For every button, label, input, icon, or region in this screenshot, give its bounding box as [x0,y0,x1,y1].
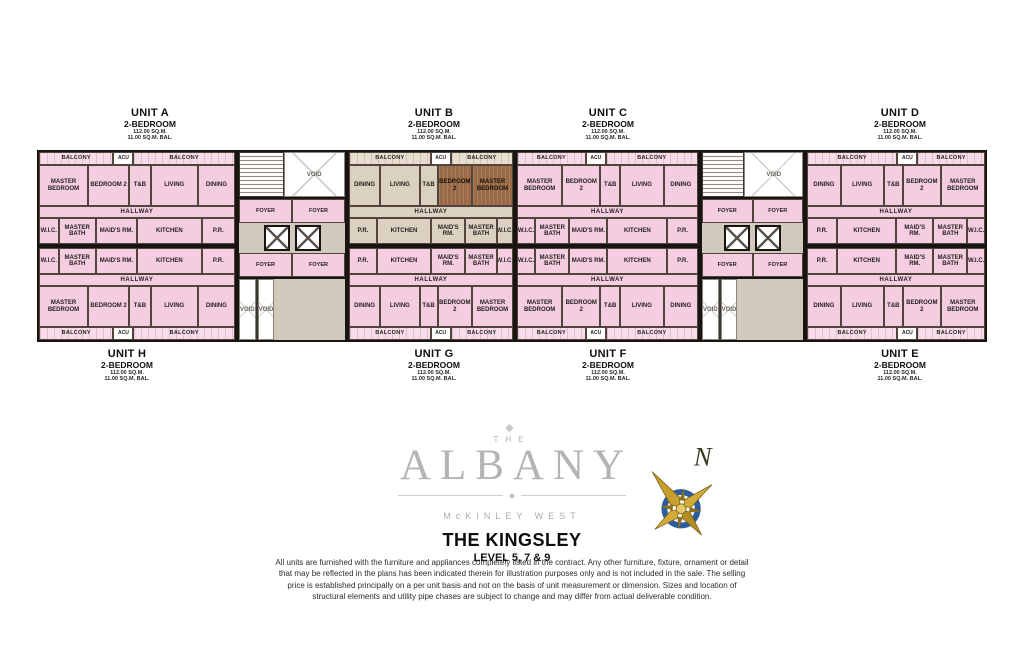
unit-type: 2-BEDROOM [369,119,499,129]
foyer-row: FOYERFOYER [702,199,803,223]
room-hallway: HALLWAY [349,274,513,286]
room-dining: DINING [198,286,235,327]
room-hallway: HALLWAY [39,206,235,218]
unit-name: UNIT H [62,348,192,360]
room-bedroom-2: BEDROOM 2 [562,286,600,327]
disclaimer-text: All units are furnished with the furnitu… [273,557,751,602]
room-maid-s-rm: MAID'S RM. [431,218,465,244]
room-master-bedroom: MASTER BEDROOM [941,286,986,327]
hallway-strip: HALLWAY [517,206,698,218]
room-living: LIVING [380,286,419,327]
logo-ornament: ◆ [372,421,652,434]
unit-type: 2-BEDROOM [369,360,499,370]
room-master-bath: MASTER BATH [535,248,569,274]
balcony-strip: BALCONYACUBALCONY [39,152,235,165]
unit-label-b: UNIT B 2-BEDROOM 112.00 SQ.M. 11.00 SQ.M… [369,107,499,141]
core-top: VOID [239,152,345,197]
room-t-b: T&B [129,286,151,327]
core-top: VOID [702,152,803,197]
room-p-r: P.R. [202,248,235,274]
room-balcony: BALCONY [39,327,113,340]
floor-plan: BALCONYACUBALCONYMASTER BEDROOMBEDROOM 2… [37,150,987,342]
room-foyer: FOYER [239,253,292,277]
acu-unit: ACU [586,327,606,340]
room-dining: DINING [664,286,698,327]
room-living: LIVING [841,165,884,206]
room-bedroom-2: BEDROOM 2 [903,165,940,206]
room-living: LIVING [620,165,663,206]
balcony-strip: BALCONYACUBALCONY [349,152,513,165]
room-p-r: P.R. [349,248,377,274]
room-maid-s-rm: MAID'S RM. [569,248,607,274]
acu-unit: ACU [586,152,606,165]
room-master-bath: MASTER BATH [535,218,569,244]
elevator-shaft-icon [295,225,321,251]
room-balcony: BALCONY [39,152,113,165]
main-rooms: MASTER BEDROOMBEDROOM 2T&BLIVINGDINING [517,165,698,206]
balcony-strip: BALCONYACUBALCONY [517,152,698,165]
room-master-bedroom: MASTER BEDROOM [472,286,513,327]
room-balcony: BALCONY [917,152,985,165]
room-bedroom-2: BEDROOM 2 [438,286,472,327]
unit-name: UNIT F [543,348,673,360]
room-kitchen: KITCHEN [837,248,896,274]
room-foyer: FOYER [292,199,345,223]
balcony-strip: BALCONYACUBALCONY [349,327,513,340]
acu-unit: ACU [113,152,133,165]
unit-h-plan: BALCONYACUBALCONYMASTER BEDROOMBEDROOM 2… [37,246,237,342]
room-kitchen: KITCHEN [377,218,431,244]
foyer-row: FOYERFOYER [239,253,345,277]
core-block-1: VOIDFOYERFOYERFOYERFOYERVOIDVOID [237,150,347,342]
acu-unit: ACU [431,327,451,340]
service-rooms: W.I.C.MASTER BATHMAID'S RM.KITCHENP.R. [39,218,235,244]
room-dining: DINING [664,165,698,206]
main-rooms: MASTER BEDROOMBEDROOM 2T&BLIVINGDINING [39,165,235,206]
room-balcony: BALCONY [133,327,235,340]
room-hallway: HALLWAY [517,206,698,218]
unit-label-c: UNIT C 2-BEDROOM 112.00 SQ.M. 11.00 SQ.M… [543,107,673,141]
unit-balcony-area: 11.00 SQ.M. BAL. [543,376,673,382]
room-dining: DINING [807,165,841,206]
room-master-bedroom: MASTER BEDROOM [39,286,88,327]
balcony-strip: BALCONYACUBALCONY [517,327,698,340]
room-t-b: T&B [884,165,904,206]
room-p-r: P.R. [349,218,377,244]
acu-unit: ACU [897,327,917,340]
room-maid-s-rm: MAID'S RM. [96,248,137,274]
compass-rose-icon: N [637,444,735,552]
room-bedroom-2: BEDROOM 2 [88,286,129,327]
foyer-row: FOYERFOYER [702,253,803,277]
unit-a-plan: BALCONYACUBALCONYMASTER BEDROOMBEDROOM 2… [37,150,237,246]
balcony-strip: BALCONYACUBALCONY [39,327,235,340]
unit-name: UNIT A [85,107,215,119]
room-bedroom-2: BEDROOM 2 [88,165,129,206]
foyer-row: FOYERFOYER [239,199,345,223]
room-living: LIVING [151,286,198,327]
room-t-b: T&B [884,286,904,327]
hallway-strip: HALLWAY [349,274,513,286]
compass-north-label: N [693,444,713,472]
service-rooms: W.I.C.MASTER BATHMAID'S RM.KITCHENP.R. [349,248,513,274]
room-balcony: BALCONY [451,152,513,165]
unit-type: 2-BEDROOM [543,360,673,370]
room-t-b: T&B [420,165,438,206]
hallway-strip: HALLWAY [807,274,985,286]
unit-b-plan: BALCONYACUBALCONYMASTER BEDROOMBEDROOM 2… [347,150,515,246]
main-rooms: MASTER BEDROOMBEDROOM 2T&BLIVINGDINING [349,165,513,206]
room-dining: DINING [807,286,841,327]
room-foyer: FOYER [239,199,292,223]
unit-column: BALCONYACUBALCONYMASTER BEDROOMBEDROOM 2… [37,150,237,342]
unit-name: UNIT G [369,348,499,360]
unit-label-h: UNIT H 2-BEDROOM 112.00 SQ.M. 11.00 SQ.M… [62,348,192,382]
unit-balcony-area: 11.00 SQ.M. BAL. [369,376,499,382]
logo-divider: ◆ [398,491,626,500]
elevator-shaft-icon [264,225,290,251]
room-balcony: BALCONY [349,327,431,340]
service-rooms: W.I.C.MASTER BATHMAID'S RM.KITCHENP.R. [517,218,698,244]
hallway-strip: HALLWAY [349,206,513,218]
room-maid-s-rm: MAID'S RM. [96,218,137,244]
room-maid-s-rm: MAID'S RM. [569,218,607,244]
unit-column: BALCONYACUBALCONYMASTER BEDROOMBEDROOM 2… [805,150,987,342]
unit-balcony-area: 11.00 SQ.M. BAL. [62,376,192,382]
unit-label-g: UNIT G 2-BEDROOM 112.00 SQ.M. 11.00 SQ.M… [369,348,499,382]
room-kitchen: KITCHEN [607,218,667,244]
room-kitchen: KITCHEN [137,248,202,274]
room-living: LIVING [380,165,419,206]
room-balcony: BALCONY [606,327,698,340]
unit-name: UNIT D [835,107,965,119]
hallway-strip: HALLWAY [807,206,985,218]
room-dining: DINING [349,286,380,327]
elevator-bank [239,223,345,253]
elevator-shaft-icon [755,225,781,251]
room-dining: DINING [349,165,380,206]
room-p-r: P.R. [667,248,698,274]
logo-divider-ornament: ◆ [509,491,515,500]
room-foyer: FOYER [753,199,804,223]
service-rooms: W.I.C.MASTER BATHMAID'S RM.KITCHENP.R. [349,218,513,244]
hallway-strip: HALLWAY [517,274,698,286]
room-hallway: HALLWAY [807,274,985,286]
room-p-r: P.R. [667,218,698,244]
unit-label-e: UNIT E 2-BEDROOM 112.00 SQ.M. 11.00 SQ.M… [835,348,965,382]
service-rooms: W.I.C.MASTER BATHMAID'S RM.KITCHENP.R. [807,218,985,244]
room-master-bath: MASTER BATH [465,248,496,274]
room-w-i-c: W.I.C. [39,218,59,244]
room-p-r: P.R. [807,218,837,244]
room-w-i-c: W.I.C. [967,248,985,274]
room-master-bath: MASTER BATH [59,248,96,274]
room-foyer: FOYER [753,253,804,277]
room-master-bedroom: MASTER BEDROOM [472,165,513,206]
room-balcony: BALCONY [133,152,235,165]
room-foyer: FOYER [702,199,753,223]
acu-unit: ACU [113,327,133,340]
stairwell [702,152,744,197]
main-rooms: MASTER BEDROOMBEDROOM 2T&BLIVINGDINING [807,286,985,327]
core-block-4: VOIDFOYERFOYERFOYERFOYERVOIDVOID [700,150,805,342]
room-balcony: BALCONY [517,152,586,165]
service-rooms: W.I.C.MASTER BATHMAID'S RM.KITCHENP.R. [39,248,235,274]
main-rooms: MASTER BEDROOMBEDROOM 2T&BLIVINGDINING [517,286,698,327]
main-rooms: MASTER BEDROOMBEDROOM 2T&BLIVINGDINING [807,165,985,206]
room-master-bedroom: MASTER BEDROOM [39,165,88,206]
room-kitchen: KITCHEN [607,248,667,274]
room-dining: DINING [198,165,235,206]
hallway-strip: HALLWAY [39,206,235,218]
room-balcony: BALCONY [807,152,897,165]
stairwell [239,152,284,197]
unit-type: 2-BEDROOM [85,119,215,129]
plan-title: THE KINGSLEY [372,530,652,551]
elevator-bank [702,223,803,253]
room-master-bath: MASTER BATH [59,218,96,244]
unit-label-a: UNIT A 2-BEDROOM 112.00 SQ.M. 11.00 SQ.M… [85,107,215,141]
room-master-bath: MASTER BATH [933,248,967,274]
floor-plan-sheet: BALCONYACUBALCONYMASTER BEDROOMBEDROOM 2… [0,0,1024,663]
core-corridor: VOIDVOID [239,279,345,340]
room-maid-s-rm: MAID'S RM. [896,218,933,244]
room-w-i-c: W.I.C. [517,248,535,274]
room-balcony: BALCONY [606,152,698,165]
room-t-b: T&B [600,165,620,206]
unit-balcony-area: 11.00 SQ.M. BAL. [835,376,965,382]
elevator-shaft-icon [724,225,750,251]
unit-type: 2-BEDROOM [543,119,673,129]
room-w-i-c: W.I.C. [497,218,513,244]
room-kitchen: KITCHEN [837,218,896,244]
room-w-i-c: W.I.C. [517,218,535,244]
main-rooms: MASTER BEDROOMBEDROOM 2T&BLIVINGDINING [349,286,513,327]
unit-column: BALCONYACUBALCONYMASTER BEDROOMBEDROOM 2… [515,150,700,342]
logo-wordmark: ALBANY [372,444,652,488]
unit-name: UNIT E [835,348,965,360]
room-balcony: BALCONY [917,327,985,340]
room-master-bedroom: MASTER BEDROOM [517,286,562,327]
room-w-i-c: W.I.C. [497,248,513,274]
balcony-strip: BALCONYACUBALCONY [807,327,985,340]
room-foyer: FOYER [292,253,345,277]
room-living: LIVING [151,165,198,206]
room-hallway: HALLWAY [349,206,513,218]
room-kitchen: KITCHEN [137,218,202,244]
unit-name: UNIT B [369,107,499,119]
room-balcony: BALCONY [807,327,897,340]
elevator-lobby: FOYERFOYERFOYERFOYER [702,197,803,279]
room-balcony: BALCONY [517,327,586,340]
unit-balcony-area: 11.00 SQ.M. BAL. [835,135,965,141]
balcony-strip: BALCONYACUBALCONY [807,152,985,165]
void-area: VOID [284,152,345,197]
room-w-i-c: W.I.C. [967,218,985,244]
room-master-bath: MASTER BATH [465,218,496,244]
unit-column: BALCONYACUBALCONYMASTER BEDROOMBEDROOM 2… [347,150,515,342]
unit-f-plan: BALCONYACUBALCONYMASTER BEDROOMBEDROOM 2… [515,246,700,342]
service-rooms: W.I.C.MASTER BATHMAID'S RM.KITCHENP.R. [807,248,985,274]
void-area: VOID [258,279,275,340]
unit-d-plan: BALCONYACUBALCONYMASTER BEDROOMBEDROOM 2… [805,150,987,246]
unit-c-plan: BALCONYACUBALCONYMASTER BEDROOMBEDROOM 2… [515,150,700,246]
void-area: VOID [239,279,256,340]
main-rooms: MASTER BEDROOMBEDROOM 2T&BLIVINGDINING [39,286,235,327]
room-t-b: T&B [129,165,151,206]
room-balcony: BALCONY [451,327,513,340]
elevator-lobby: FOYERFOYERFOYERFOYER [239,197,345,279]
void-area: VOID [744,152,803,197]
void-area: VOID [721,279,738,340]
room-bedroom-2: BEDROOM 2 [903,286,940,327]
room-w-i-c: W.I.C. [39,248,59,274]
room-kitchen: KITCHEN [377,248,431,274]
room-balcony: BALCONY [349,152,431,165]
room-living: LIVING [620,286,663,327]
unit-e-plan: BALCONYACUBALCONYMASTER BEDROOMBEDROOM 2… [805,246,987,342]
room-t-b: T&B [420,286,438,327]
unit-type: 2-BEDROOM [835,119,965,129]
unit-type: 2-BEDROOM [835,360,965,370]
room-t-b: T&B [600,286,620,327]
void-area: VOID [702,279,719,340]
room-master-bedroom: MASTER BEDROOM [941,165,986,206]
room-bedroom-2: BEDROOM 2 [438,165,472,206]
room-bedroom-2: BEDROOM 2 [562,165,600,206]
room-hallway: HALLWAY [807,206,985,218]
albany-logo: ◆ THE ALBANY ◆ McKINLEY WEST THE KINGSLE… [372,421,652,564]
acu-unit: ACU [897,152,917,165]
room-hallway: HALLWAY [517,274,698,286]
unit-label-d: UNIT D 2-BEDROOM 112.00 SQ.M. 11.00 SQ.M… [835,107,965,141]
room-foyer: FOYER [702,253,753,277]
unit-type: 2-BEDROOM [62,360,192,370]
room-maid-s-rm: MAID'S RM. [896,248,933,274]
room-p-r: P.R. [202,218,235,244]
unit-name: UNIT C [543,107,673,119]
unit-balcony-area: 11.00 SQ.M. BAL. [543,135,673,141]
room-p-r: P.R. [807,248,837,274]
core-corridor: VOIDVOID [702,279,803,340]
room-maid-s-rm: MAID'S RM. [431,248,465,274]
unit-balcony-area: 11.00 SQ.M. BAL. [85,135,215,141]
unit-label-f: UNIT F 2-BEDROOM 112.00 SQ.M. 11.00 SQ.M… [543,348,673,382]
room-master-bedroom: MASTER BEDROOM [517,165,562,206]
logo-location: McKINLEY WEST [372,511,652,521]
room-master-bath: MASTER BATH [933,218,967,244]
hallway-strip: HALLWAY [39,274,235,286]
room-hallway: HALLWAY [39,274,235,286]
acu-unit: ACU [431,152,451,165]
room-living: LIVING [841,286,884,327]
unit-balcony-area: 11.00 SQ.M. BAL. [369,135,499,141]
unit-g-plan: BALCONYACUBALCONYMASTER BEDROOMBEDROOM 2… [347,246,515,342]
service-rooms: W.I.C.MASTER BATHMAID'S RM.KITCHENP.R. [517,248,698,274]
